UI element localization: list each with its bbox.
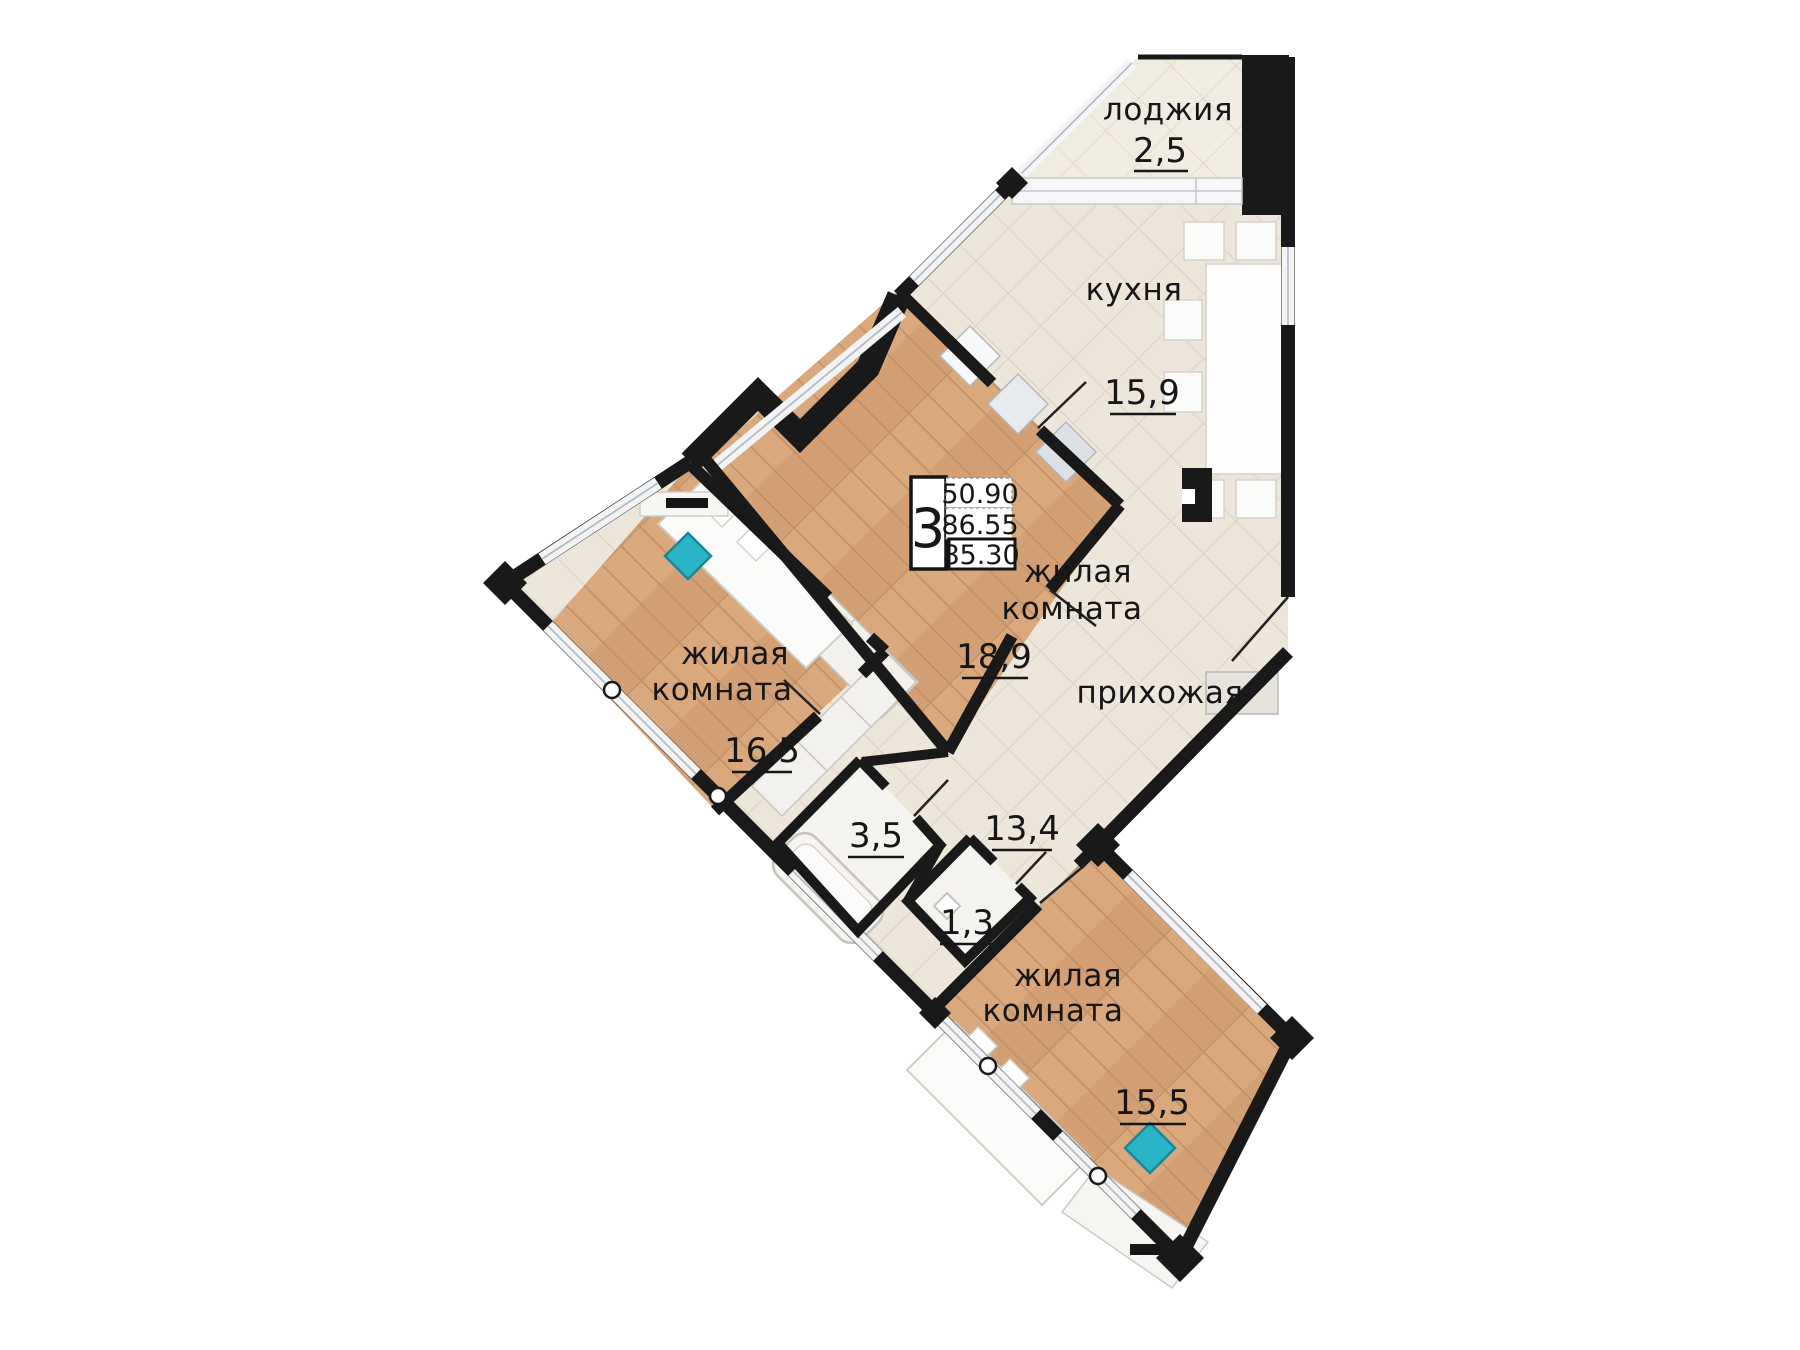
- tv-left-room: [666, 498, 708, 508]
- hallway-name: прихожая: [1077, 675, 1244, 711]
- kitchen-table: [1206, 264, 1282, 474]
- loggia-corner-block: [1242, 55, 1289, 215]
- kitchen-chair: [1236, 480, 1276, 518]
- floor-plan-svg: 3 50.90 86.55 85.30 лоджия 2,5 кухня 15,…: [0, 0, 1800, 1350]
- living-room-2-area: 16,5: [724, 731, 800, 771]
- vent-shaft-notch: [1182, 489, 1195, 504]
- living-room-3-name-line2: комната: [983, 993, 1124, 1029]
- unit-info-box: 3 50.90 86.55 85.30: [911, 477, 1020, 571]
- wc-area: 1,3: [940, 903, 994, 943]
- living-room-1-name-line2: комната: [1002, 591, 1143, 627]
- loggia-name: лоджия: [1103, 92, 1233, 128]
- total-area-value: 86.55: [941, 510, 1018, 541]
- living-room-2-name-line2: комната: [652, 672, 793, 708]
- living-room-1-area: 18,9: [956, 637, 1032, 677]
- bathroom-area: 3,5: [849, 816, 903, 856]
- kitchen-chair: [1236, 222, 1276, 260]
- living-room-1-name-line1: жилая: [1024, 554, 1132, 590]
- living-room-3-area: 15,5: [1114, 1083, 1190, 1123]
- loggia-area: 2,5: [1133, 131, 1187, 171]
- kitchen-name: кухня: [1086, 272, 1183, 308]
- kitchen-chair: [1184, 222, 1224, 260]
- hallway-area: 13,4: [984, 809, 1060, 849]
- living-room-2-name-line1: жилая: [681, 636, 789, 672]
- floor-plan-page: 3 50.90 86.55 85.30 лоджия 2,5 кухня 15,…: [0, 0, 1800, 1350]
- living-room-3-name-line1: жилая: [1014, 958, 1122, 994]
- kitchen-area: 15,9: [1104, 373, 1180, 413]
- reduced-area-value: 85.30: [942, 540, 1019, 571]
- living-area-value: 50.90: [941, 479, 1018, 510]
- unit-number: 3: [911, 497, 945, 560]
